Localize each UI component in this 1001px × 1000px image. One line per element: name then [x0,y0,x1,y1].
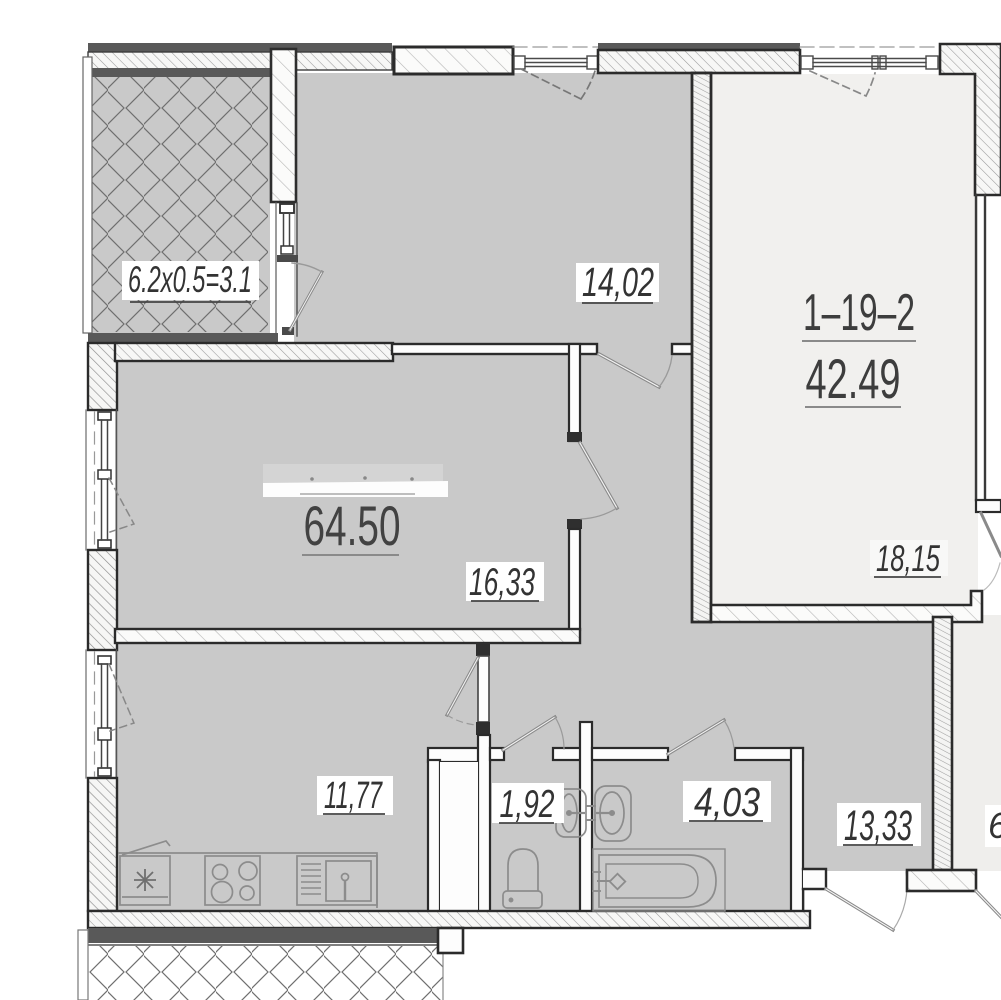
svg-text:14,02: 14,02 [582,259,654,305]
svg-text:16,33: 16,33 [469,561,535,604]
svg-text:11,77: 11,77 [324,775,383,817]
svg-text:18,15: 18,15 [876,538,940,579]
svg-text:6: 6 [988,805,1001,846]
svg-text:42.49: 42.49 [806,347,901,410]
svg-text:1–19–2: 1–19–2 [803,284,915,342]
svg-text:6.2x0.5=3.1: 6.2x0.5=3.1 [128,259,252,300]
svg-text:4,03: 4,03 [694,779,760,825]
svg-text:1,92: 1,92 [500,783,555,826]
svg-text:13,33: 13,33 [844,802,912,850]
svg-text:64.50: 64.50 [304,494,401,557]
